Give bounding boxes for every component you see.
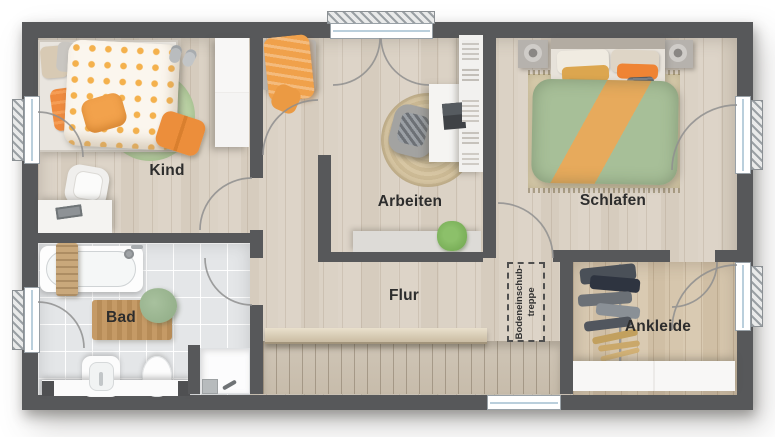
arbeiten-plant xyxy=(437,221,467,251)
wall-arbeiten-corridor xyxy=(318,155,331,262)
kind-wardrobe xyxy=(215,38,249,147)
ankleide-window xyxy=(735,262,751,331)
flur-window xyxy=(487,395,561,410)
staircase-treads xyxy=(263,341,560,394)
floorplan-canvas: Bodeneinschub- treppe xyxy=(0,0,775,437)
room-label-flur: Flur xyxy=(389,287,419,305)
room-label-arbeiten: Arbeiten xyxy=(378,193,442,211)
wall-schlafen-ankleide-stub xyxy=(715,250,737,262)
schlafen-window xyxy=(735,96,751,174)
bathtub-caddy xyxy=(56,243,78,296)
schlafen-window-shutter xyxy=(751,100,763,170)
wall-flur-ankleide xyxy=(560,262,573,394)
wall-kind-bad xyxy=(38,233,250,243)
bad-vanity-counter xyxy=(42,380,190,396)
schlafen-lamp-right xyxy=(669,44,687,62)
room-label-schlafen: Schlafen xyxy=(580,192,646,210)
wall-arbeiten-flur xyxy=(331,252,483,262)
bad-window xyxy=(24,287,40,353)
kind-window-shutter xyxy=(12,99,24,161)
wall-shower-partition xyxy=(188,345,200,394)
wall-kind-corridor-upper xyxy=(250,38,263,178)
attic-stairs-label: Bodeneinschub- treppe xyxy=(514,265,538,339)
shower-drain xyxy=(202,379,218,394)
bookshelf-books-2 xyxy=(462,68,479,81)
attic-stairs-outline: Bodeneinschub- treppe xyxy=(507,262,545,342)
wall-bad-flur-lower xyxy=(250,305,263,394)
bathtub-shower-arm xyxy=(131,245,143,249)
bidet-tap xyxy=(99,372,103,386)
kind-window xyxy=(24,96,40,164)
bookshelf-books-3 xyxy=(462,100,479,122)
wall-arbeiten-schlafen xyxy=(483,38,496,258)
bad-window-shutter xyxy=(12,290,24,350)
bad-vanity-end-left xyxy=(42,381,54,396)
bathtub-faucet xyxy=(124,249,134,259)
bookshelf-books-4 xyxy=(462,130,479,144)
bookshelf-books-5 xyxy=(462,152,479,165)
stair-railing xyxy=(265,328,487,344)
wall-schlafen-flur xyxy=(553,250,670,262)
room-label-bad: Bad xyxy=(106,309,136,327)
ankleide-dresser xyxy=(573,361,735,391)
ankleide-window-shutter xyxy=(751,266,763,327)
schlafen-duvet xyxy=(531,79,679,186)
schlafen-lamp-left xyxy=(524,44,542,62)
kind-desk-chair-seat xyxy=(72,170,104,202)
room-label-ankleide: Ankleide xyxy=(625,318,691,336)
bookshelf-books-1 xyxy=(462,40,479,60)
room-label-kind: Kind xyxy=(149,162,184,180)
arbeiten-balcony-door xyxy=(330,23,433,39)
wall-kind-bad-stub xyxy=(250,230,263,258)
